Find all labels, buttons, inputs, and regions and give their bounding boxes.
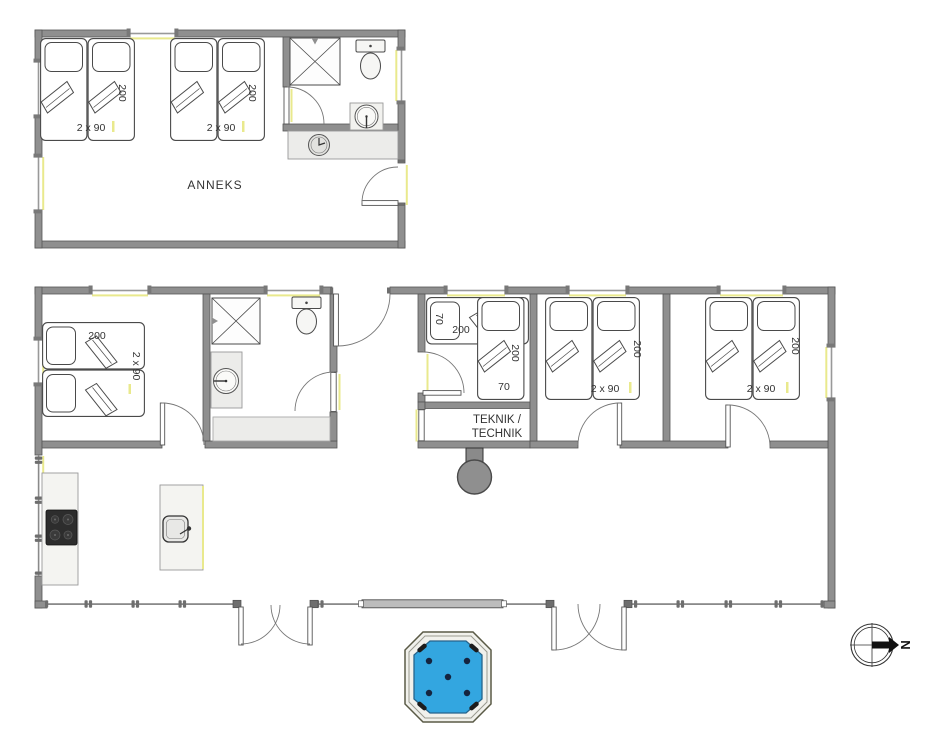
bed-length-label: 200 bbox=[509, 344, 521, 362]
main-entry-door bbox=[330, 288, 390, 347]
annex-washbasin bbox=[350, 103, 383, 130]
bathroom-bench bbox=[213, 417, 330, 441]
bed-width-label: 2 x 90 bbox=[77, 122, 106, 134]
annex-bathroom-door bbox=[284, 87, 324, 124]
fixed-window-panel bbox=[362, 600, 503, 608]
bed-width-label: 2 x 90 bbox=[747, 383, 776, 395]
cooktop bbox=[46, 510, 77, 545]
bottom-glazing bbox=[45, 600, 824, 608]
main-washbasin bbox=[211, 352, 242, 408]
main-house: 200 2 x 90 70 200 200 70 TEKNIK / TECHNI… bbox=[34, 286, 836, 651]
bedroom1-door bbox=[160, 403, 204, 445]
bed-width-label: 2 x 90 bbox=[207, 122, 236, 134]
right-bedroom-door bbox=[726, 405, 770, 447]
bed-length-label: 200 bbox=[116, 84, 128, 102]
bed-width-label: 2 x 90 bbox=[130, 352, 142, 381]
technik-room-label: TEKNIK / bbox=[473, 414, 522, 426]
dim-tick bbox=[786, 382, 789, 393]
north-label: N bbox=[898, 640, 913, 649]
dim-tick bbox=[129, 384, 132, 394]
main-shower bbox=[212, 298, 260, 344]
terrace-double-door-1 bbox=[233, 600, 318, 645]
small-bedroom-door bbox=[423, 352, 464, 395]
floor-plan-drawing: 200 2 x 90 200 2 x 90 ANNEKS bbox=[0, 0, 930, 753]
bed-length-label: 200 bbox=[631, 340, 643, 358]
bed-width-label: 70 bbox=[498, 381, 510, 393]
annex-laundry-counter bbox=[288, 131, 398, 159]
bed-length-label: 200 bbox=[88, 330, 106, 342]
bed-length-label: 200 bbox=[246, 84, 258, 102]
bed-width-label: 70 bbox=[433, 313, 445, 325]
annex-building: 200 2 x 90 200 2 x 90 ANNEKS bbox=[34, 29, 408, 249]
hot-tub bbox=[405, 632, 491, 722]
wood-stove bbox=[458, 448, 492, 494]
technik-room-label: TECHNIK bbox=[472, 428, 523, 440]
bed-length-label: 200 bbox=[789, 337, 801, 355]
technik-door bbox=[416, 410, 425, 442]
terrace-double-door-2 bbox=[546, 600, 632, 650]
floor-plan: 200 2 x 90 200 2 x 90 ANNEKS bbox=[0, 0, 930, 753]
annex-entry-door bbox=[362, 160, 408, 207]
bed-width-label: 2 x 90 bbox=[591, 383, 620, 395]
dim-tick bbox=[112, 121, 115, 132]
bed-length-label: 200 bbox=[452, 324, 470, 336]
dim-tick bbox=[242, 121, 245, 132]
main-toilet bbox=[292, 297, 321, 334]
dim-tick bbox=[629, 382, 632, 393]
annex-shower bbox=[290, 38, 340, 85]
compass: N bbox=[850, 623, 913, 667]
middle-bedroom-door bbox=[578, 403, 622, 445]
kitchen-counter bbox=[42, 473, 78, 585]
kitchen-island bbox=[160, 485, 204, 570]
bathroom-door bbox=[295, 372, 341, 412]
annex-toilet bbox=[356, 40, 385, 79]
annex-room-label: ANNEKS bbox=[187, 178, 242, 192]
